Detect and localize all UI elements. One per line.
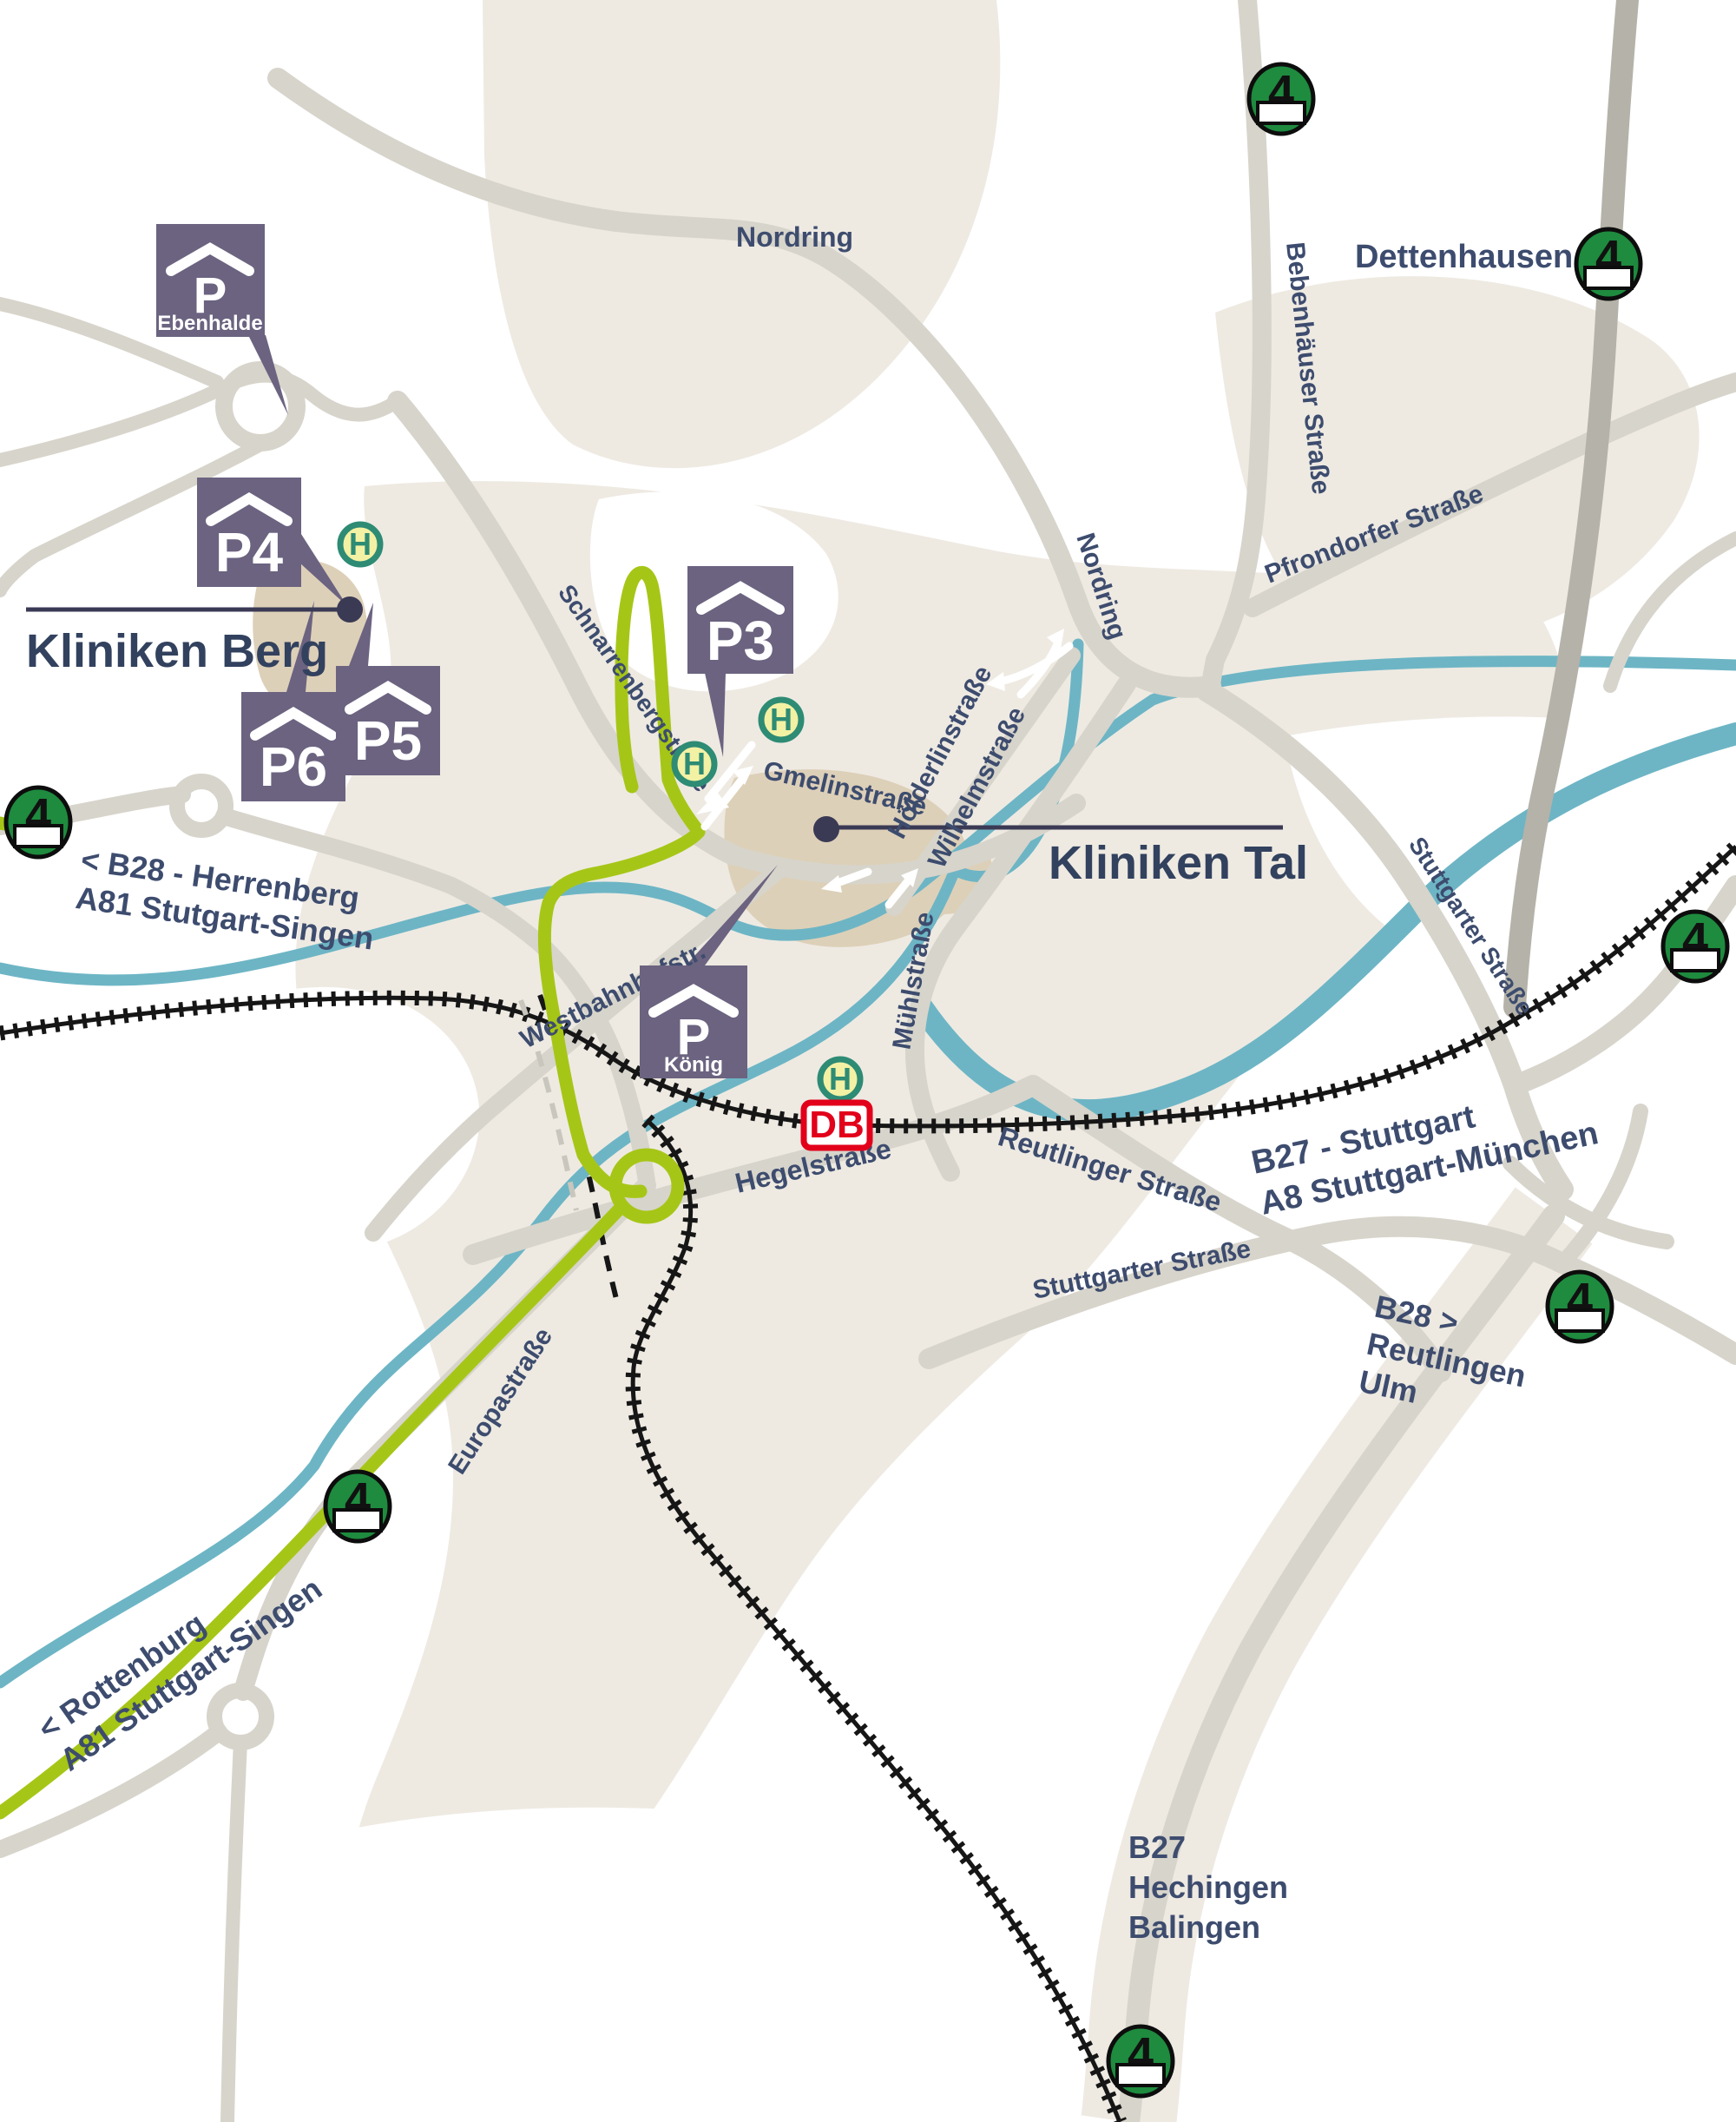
line-badge-bar	[1585, 267, 1632, 288]
parking-p3-label: P3	[707, 610, 774, 672]
bus-stop-letter: H	[683, 746, 706, 781]
dot-kliniken-berg	[337, 596, 363, 623]
parking-p6-label: P6	[260, 735, 327, 798]
line-badge-bar	[1117, 2065, 1164, 2086]
label-dettenhausen: Dettenhausen >	[1355, 239, 1601, 275]
parking-p6[interactable]: P6	[241, 692, 345, 801]
bus-stop-letter: H	[829, 1061, 852, 1097]
parking-p4[interactable]: P4	[197, 478, 301, 587]
line-badge-bar	[1672, 950, 1719, 971]
line-4-badge-b28[interactable]: 4	[1548, 1272, 1612, 1341]
parking-ebenhalde-label: Ebenhalde	[157, 312, 262, 335]
db-logo-text: DB	[809, 1104, 865, 1146]
bus-stop-letter: H	[349, 526, 372, 562]
map-canvas: Nordring Nordring Bebenhäuser Straße Pfr…	[0, 0, 1736, 2122]
line-badge-bar	[1556, 1310, 1603, 1331]
line-4-badge-europastrasse[interactable]: 4	[325, 1472, 390, 1541]
parking-ebenhalde[interactable]: P Ebenhalde	[156, 224, 265, 337]
label-kliniken-tal: Kliniken Tal	[1049, 837, 1308, 889]
line-badge-bar	[15, 826, 62, 847]
white-gap-south	[296, 1808, 1019, 2122]
parking-p4-label: P4	[215, 521, 284, 583]
db-station[interactable]: DB	[804, 1103, 870, 1148]
label-b27-hechingen-line1: B27	[1128, 1829, 1186, 1865]
bus-stop-berg[interactable]: H	[340, 524, 380, 564]
line-badge-bar	[1258, 102, 1305, 123]
road-sued-vertikal	[227, 1743, 240, 2122]
line-4-badge-west[interactable]: 4	[6, 788, 70, 857]
label-kliniken-berg: Kliniken Berg	[26, 625, 328, 677]
parking-p5[interactable]: P5	[336, 666, 440, 775]
road-left-lower	[0, 376, 398, 460]
label-nordring-top: Nordring	[736, 221, 853, 253]
bus-stop-letter: H	[770, 702, 792, 737]
line-4-badge-nord[interactable]: 4	[1249, 64, 1313, 134]
label-b27-hechingen-line2: Hechingen	[1128, 1869, 1288, 1905]
bus-stop-bahnhof[interactable]: H	[820, 1059, 860, 1099]
line-badge-bar	[334, 1510, 381, 1531]
label-b27-hechingen-line3: Balingen	[1128, 1909, 1260, 1945]
parking-koenig-label: König	[664, 1053, 723, 1077]
line-4-badge-ost[interactable]: 4	[1663, 912, 1727, 981]
parking-p3[interactable]: P3	[687, 566, 793, 674]
bus-stop-gmelin[interactable]: H	[761, 700, 801, 740]
parking-p5-label: P5	[354, 709, 422, 772]
line-4-badge-sued[interactable]: 4	[1108, 2026, 1173, 2096]
dot-kliniken-tal	[813, 816, 839, 842]
parking-koenig[interactable]: P König	[640, 965, 747, 1078]
line-4-badge-dettenhausen[interactable]: 4	[1576, 229, 1641, 299]
bus-stop-schnarrenberg[interactable]: H	[674, 744, 714, 784]
